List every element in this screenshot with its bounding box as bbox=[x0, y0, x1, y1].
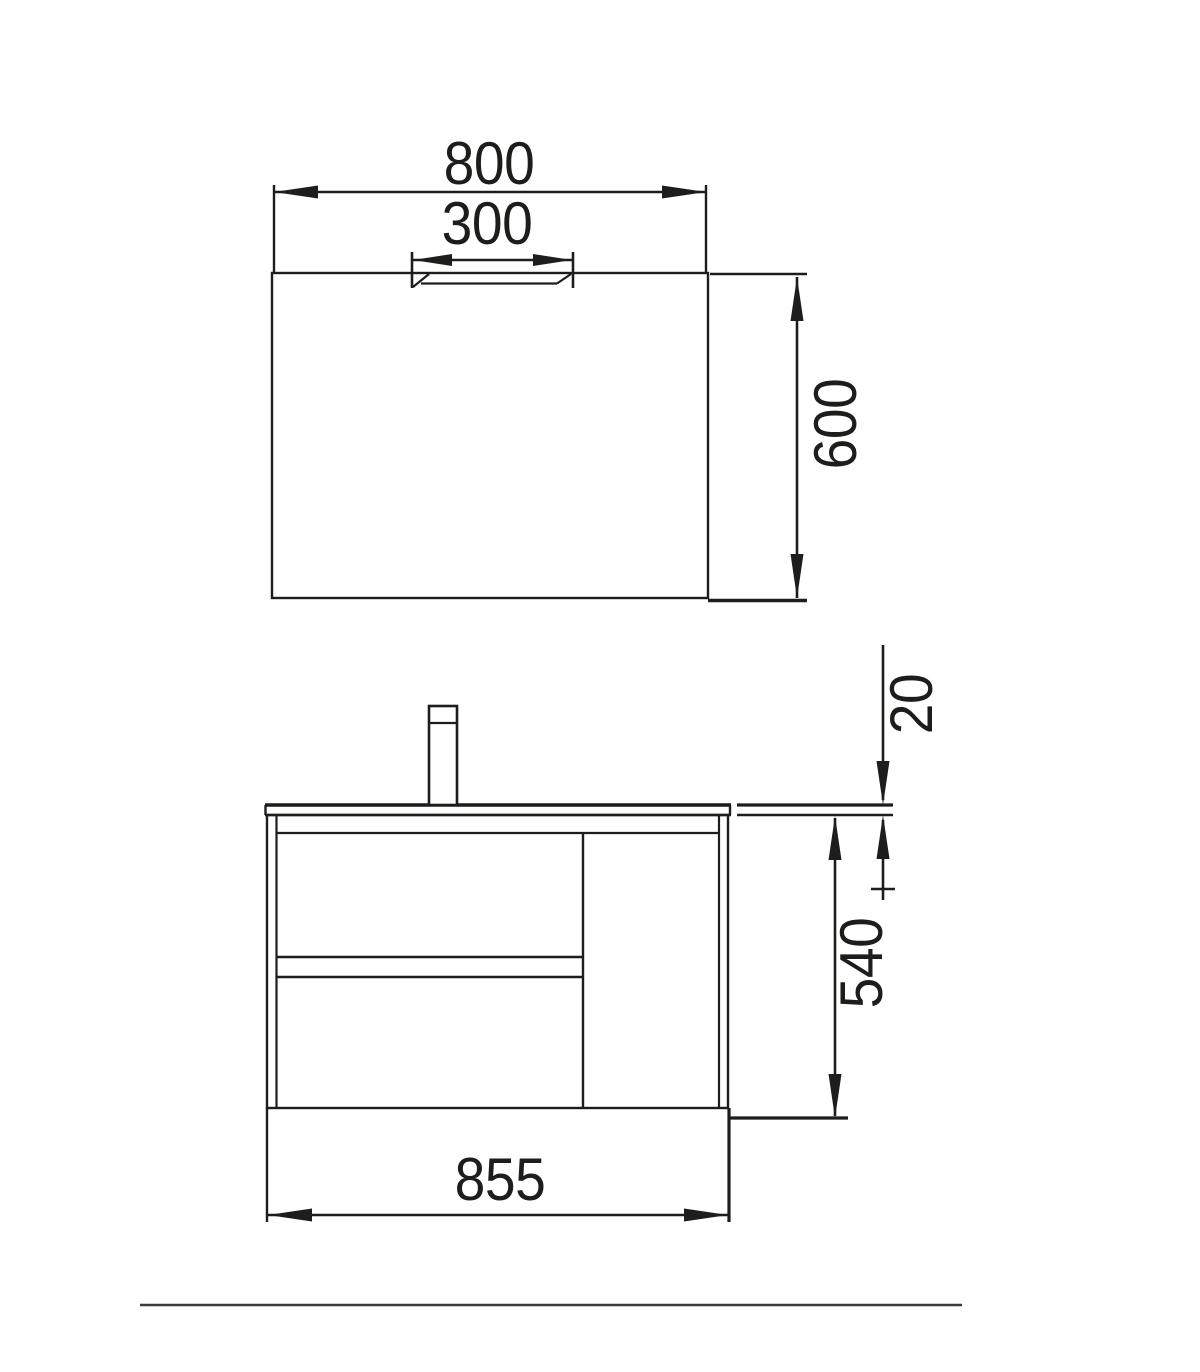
dim-600-arrow-bottom bbox=[791, 554, 804, 598]
faucet-body bbox=[429, 706, 457, 805]
dim-800-arrow-left bbox=[274, 186, 318, 199]
dim-20-arrow-down bbox=[877, 761, 890, 805]
dim-label-countertop-thickness: 20 bbox=[882, 674, 942, 734]
dim-855-arrow-left bbox=[268, 1209, 312, 1222]
dim-300-arrow-right bbox=[533, 254, 572, 266]
dim-540-arrow-top bbox=[829, 816, 842, 860]
light-fixture-right-slant bbox=[557, 274, 571, 284]
dim-20-arrow-up bbox=[877, 815, 890, 859]
drawing-geometry bbox=[0, 0, 1200, 1372]
dim-540-arrow-bottom bbox=[829, 1074, 842, 1118]
dim-label-cabinet-height: 540 bbox=[832, 918, 892, 1009]
dim-800-arrow-right bbox=[662, 186, 706, 199]
light-fixture-left-slant bbox=[413, 274, 429, 287]
mirror-outline bbox=[272, 273, 708, 598]
dim-label-light-width: 300 bbox=[442, 194, 533, 254]
technical-drawing-canvas: 800 300 600 20 540 855 bbox=[0, 0, 1200, 1372]
dim-855-arrow-right bbox=[684, 1209, 728, 1222]
dim-label-overall-width: 855 bbox=[455, 1150, 546, 1210]
dim-label-mirror-height: 600 bbox=[806, 379, 866, 470]
dim-600-arrow-top bbox=[791, 277, 804, 321]
cabinet-outline bbox=[267, 815, 728, 1108]
dim-label-mirror-width: 800 bbox=[444, 134, 535, 194]
